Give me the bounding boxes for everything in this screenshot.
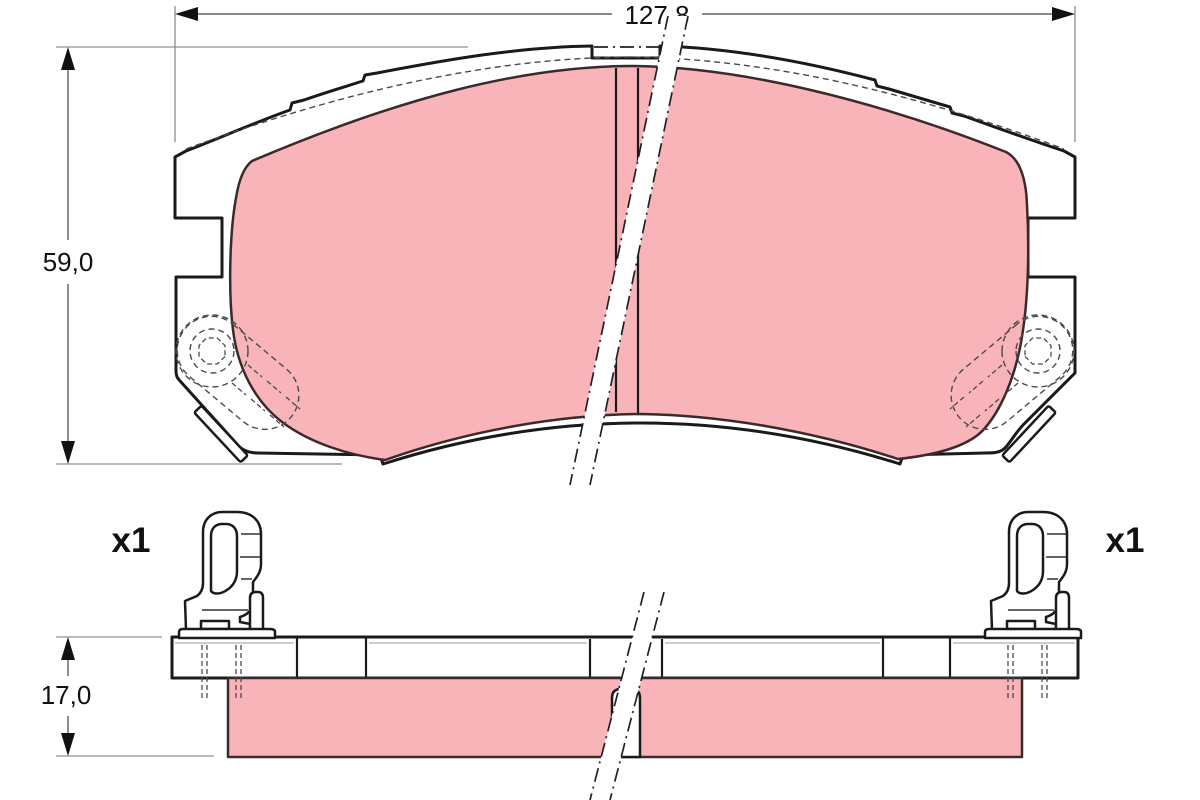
clip-foot-plate [179, 629, 275, 638]
brake-pad-drawing: 127,8 59,0 [0, 0, 1200, 800]
technical-drawing-canvas: 127,8 59,0 [0, 0, 1200, 800]
clip-flange [1056, 592, 1069, 630]
clip-slot [211, 524, 237, 594]
front-view [163, 16, 1086, 485]
height-dimension-label: 59,0 [43, 247, 94, 277]
qty-label-left: x1 [112, 521, 151, 560]
thickness-dimension-label: 17,0 [41, 680, 92, 710]
arrowhead-bottom [61, 441, 75, 464]
arrowhead-left [175, 7, 198, 21]
arrowhead-bottom [61, 733, 75, 756]
arrowhead-top [61, 47, 75, 70]
arrowhead-right [1052, 7, 1075, 21]
qty-label-right: x1 [1106, 521, 1145, 560]
clip-slot [1017, 524, 1043, 594]
clip-flange [250, 592, 263, 630]
clip-foot-plate [985, 629, 1081, 638]
side-view [172, 512, 1081, 800]
arrowhead-top [61, 637, 75, 660]
